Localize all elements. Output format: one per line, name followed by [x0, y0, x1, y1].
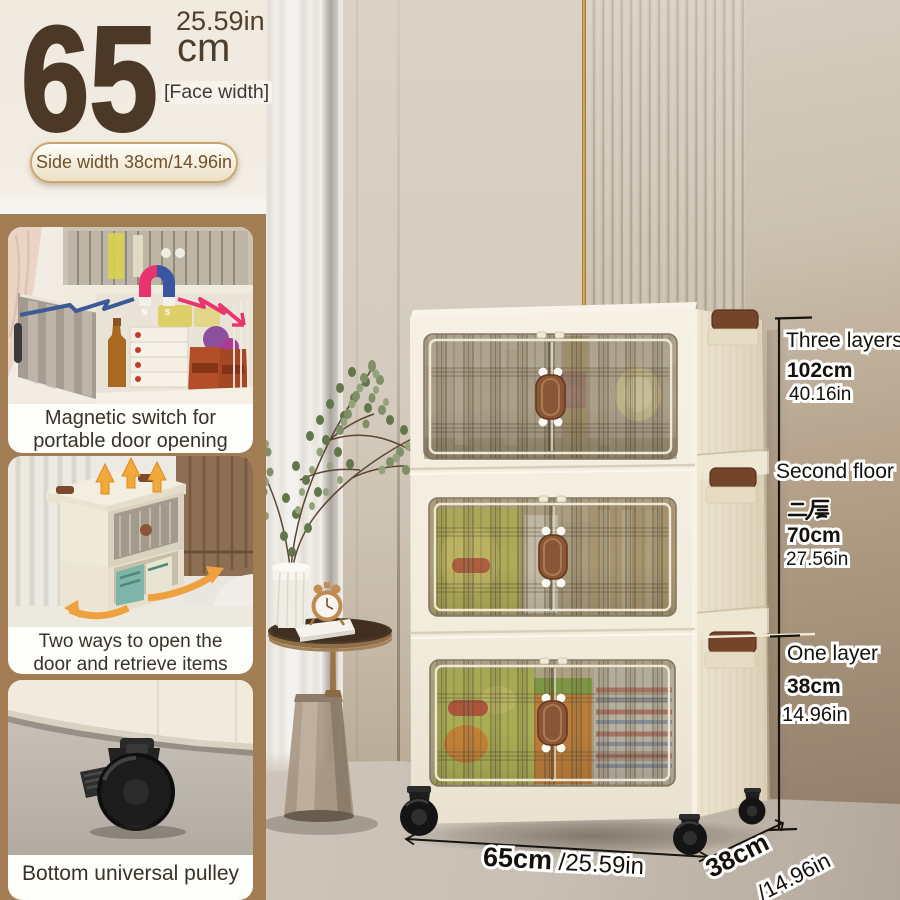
- svg-text:S: S: [165, 308, 171, 317]
- svg-text:N: N: [142, 308, 148, 317]
